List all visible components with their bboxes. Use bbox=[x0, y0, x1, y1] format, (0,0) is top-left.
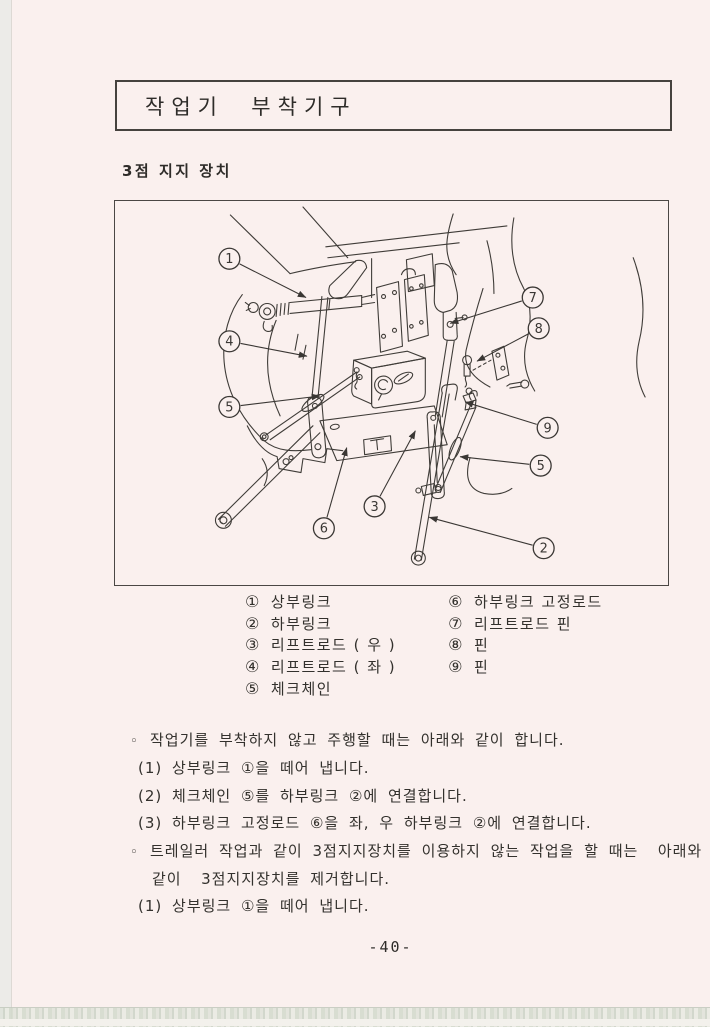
legend-item: ⑤체크체인 bbox=[245, 677, 396, 699]
legend-item-number: ① bbox=[245, 592, 261, 611]
instruction-line: (3) 하부링크 고정로드 ⑥을 좌, 우 하부링크 ②에 연결합니다. bbox=[130, 810, 610, 837]
callout-arrow bbox=[380, 431, 415, 497]
legend-item-label: 리프트로드 ( 좌 ) bbox=[271, 656, 396, 677]
instructions-text: ◦작업기를 부착하지 않고 주행할 때는 아래와 같이 합니다.(1) 상부링크… bbox=[130, 727, 610, 921]
legend-item-label: 상부링크 bbox=[271, 591, 332, 612]
legend-column-right: ⑥하부링크 고정로드⑦리프트로드 핀⑧핀⑨핀 bbox=[448, 591, 603, 699]
hitch-diagram-figure: 1457895362 bbox=[114, 200, 669, 586]
instruction-line-text: 작업기를 부착하지 않고 주행할 때는 아래와 같이 합니다. bbox=[150, 731, 565, 749]
page-title: 작업기 부착기구 bbox=[117, 91, 357, 121]
callout-number: 7 bbox=[529, 291, 537, 306]
legend-item-number: ④ bbox=[245, 657, 261, 676]
instruction-line-text: (3) 하부링크 고정로드 ⑥을 좌, 우 하부링크 ②에 연결합니다. bbox=[138, 814, 592, 832]
legend-item-number: ⑤ bbox=[245, 679, 261, 698]
callout-arrow bbox=[327, 448, 347, 518]
callout-arrow bbox=[429, 517, 532, 545]
instruction-line: ◦트레일러 작업과 같이 3점지지장치를 이용하지 않는 작업을 할 때는 아래… bbox=[130, 838, 610, 866]
legend-item-number: ⑥ bbox=[448, 592, 464, 611]
instruction-line-text: 같이 3점지지장치를 제거합니다. bbox=[152, 870, 390, 888]
legend-item-label: 하부링크 bbox=[271, 613, 332, 634]
legend-item: ⑨핀 bbox=[448, 656, 603, 678]
legend-item-label: 핀 bbox=[474, 634, 489, 655]
callout-number: 5 bbox=[537, 459, 545, 474]
legend-item-label: 리프트로드 ( 우 ) bbox=[271, 634, 396, 655]
list-bullet: ◦ bbox=[130, 728, 150, 755]
instruction-line-text: (2) 체크체인 ⑤를 하부링크 ②에 연결합니다. bbox=[138, 787, 468, 805]
legend-item-label: 핀 bbox=[474, 656, 489, 677]
scan-page-left-edge bbox=[0, 0, 12, 1026]
legend-item: ①상부링크 bbox=[245, 591, 396, 613]
callout-arrow bbox=[477, 334, 529, 361]
legend-item: ③리프트로드 ( 우 ) bbox=[245, 634, 396, 656]
section-heading: 3점 지지 장치 bbox=[122, 160, 232, 181]
instruction-line-text: (1) 상부링크 ①을 떼어 냅니다. bbox=[138, 897, 370, 915]
figure-legend: ①상부링크②하부링크③리프트로드 ( 우 )④리프트로드 ( 좌 )⑤체크체인 … bbox=[245, 591, 603, 699]
instruction-line-text: (1) 상부링크 ①을 떼어 냅니다. bbox=[138, 759, 370, 777]
legend-item-label: 체크체인 bbox=[271, 678, 332, 699]
instruction-line: (1) 상부링크 ①을 떼어 냅니다. bbox=[130, 755, 610, 782]
legend-item: ④리프트로드 ( 좌 ) bbox=[245, 656, 396, 678]
hitch-diagram-svg: 1457895362 bbox=[115, 201, 668, 585]
diagram-linework bbox=[215, 207, 645, 565]
callout-arrow bbox=[241, 343, 307, 356]
callout-arrow bbox=[450, 301, 522, 323]
callout-arrow bbox=[240, 264, 306, 298]
legend-item: ⑥하부링크 고정로드 bbox=[448, 591, 603, 613]
callout-number: 2 bbox=[540, 542, 548, 557]
legend-item-number: ⑧ bbox=[448, 635, 464, 654]
instruction-line: 같이 3점지지장치를 제거합니다. bbox=[130, 866, 610, 893]
callout-arrow bbox=[460, 457, 529, 465]
legend-item-label: 리프트로드 핀 bbox=[474, 613, 572, 634]
callout-number: 3 bbox=[370, 500, 378, 515]
page-number: -40- bbox=[114, 938, 667, 956]
legend-item: ②하부링크 bbox=[245, 613, 396, 635]
callout-number: 9 bbox=[544, 421, 552, 436]
callout-number: 6 bbox=[320, 522, 328, 537]
instruction-line: (1) 상부링크 ①을 떼어 냅니다. bbox=[130, 893, 610, 920]
scan-page-bottom-margin bbox=[0, 1019, 710, 1026]
legend-item-number: ② bbox=[245, 614, 261, 633]
callout-number: 1 bbox=[225, 252, 233, 267]
instruction-line: (2) 체크체인 ⑤를 하부링크 ②에 연결합니다. bbox=[130, 783, 610, 810]
instruction-line-text: 트레일러 작업과 같이 3점지지장치를 이용하지 않는 작업을 할 때는 아래와 bbox=[150, 842, 702, 860]
callout-number: 5 bbox=[225, 400, 233, 415]
callout-number: 4 bbox=[225, 335, 233, 350]
legend-column-left: ①상부링크②하부링크③리프트로드 ( 우 )④리프트로드 ( 좌 )⑤체크체인 bbox=[245, 591, 396, 699]
legend-item-label: 하부링크 고정로드 bbox=[474, 591, 603, 612]
diagram-callouts: 1457895362 bbox=[219, 248, 558, 558]
callout-number: 8 bbox=[535, 322, 543, 337]
list-bullet: ◦ bbox=[130, 839, 150, 866]
title-box: 작업기 부착기구 bbox=[115, 80, 672, 131]
legend-item-number: ③ bbox=[245, 635, 261, 654]
legend-item: ⑦리프트로드 핀 bbox=[448, 613, 603, 635]
callout-arrow bbox=[465, 402, 537, 424]
legend-item-number: ⑨ bbox=[448, 657, 464, 676]
legend-item: ⑧핀 bbox=[448, 634, 603, 656]
legend-item-number: ⑦ bbox=[448, 614, 464, 633]
instruction-line: ◦작업기를 부착하지 않고 주행할 때는 아래와 같이 합니다. bbox=[130, 727, 610, 755]
